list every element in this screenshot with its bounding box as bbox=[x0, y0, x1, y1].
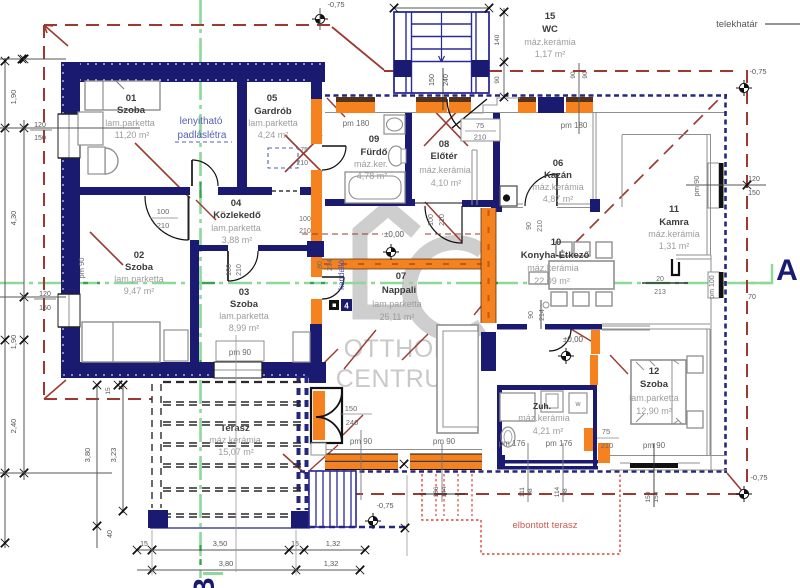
svg-text:90: 90 bbox=[494, 76, 501, 84]
svg-text:pm 90: pm 90 bbox=[77, 258, 86, 279]
svg-text:-0,75: -0,75 bbox=[750, 473, 767, 482]
svg-text:15: 15 bbox=[140, 541, 148, 548]
svg-text:4,78 m²: 4,78 m² bbox=[357, 171, 388, 181]
svg-text:75: 75 bbox=[300, 147, 308, 154]
svg-text:70: 70 bbox=[748, 294, 756, 301]
svg-text:elbontott terasz: elbontott terasz bbox=[513, 520, 578, 531]
svg-text:214: 214 bbox=[539, 309, 546, 321]
svg-text:210: 210 bbox=[236, 264, 243, 276]
svg-text:telekhatár: telekhatár bbox=[716, 19, 758, 30]
svg-text:Kazán: Kazán bbox=[544, 170, 572, 181]
svg-text:Előtér: Előtér bbox=[431, 151, 458, 162]
svg-text:WC: WC bbox=[542, 24, 558, 35]
svg-text:240: 240 bbox=[346, 418, 359, 427]
svg-text:pm 180: pm 180 bbox=[343, 119, 370, 128]
svg-text:máz.kerámia: máz.kerámia bbox=[209, 435, 261, 445]
svg-text:05: 05 bbox=[267, 93, 278, 104]
svg-text:3,23: 3,23 bbox=[109, 448, 118, 463]
svg-text:01: 01 bbox=[126, 93, 137, 104]
svg-text:4,24 m²: 4,24 m² bbox=[258, 130, 289, 140]
svg-text:98: 98 bbox=[562, 488, 569, 496]
svg-text:9,47 m²: 9,47 m² bbox=[124, 286, 155, 296]
svg-text:lam.parketta: lam.parketta bbox=[211, 223, 261, 233]
svg-text:22,09 m²: 22,09 m² bbox=[534, 276, 570, 286]
svg-text:1,31 m²: 1,31 m² bbox=[659, 241, 690, 251]
svg-text:Szoba: Szoba bbox=[230, 299, 259, 310]
svg-text:120: 120 bbox=[748, 176, 760, 183]
svg-text:1,90: 1,90 bbox=[9, 90, 18, 105]
svg-text:Közlekedő: Közlekedő bbox=[213, 210, 261, 221]
svg-text:12: 12 bbox=[649, 366, 660, 377]
svg-text:100: 100 bbox=[428, 214, 435, 226]
svg-text:100: 100 bbox=[157, 207, 170, 216]
svg-text:100: 100 bbox=[299, 216, 311, 223]
svg-text:lenyitható: lenyitható bbox=[180, 116, 223, 127]
svg-text:114: 114 bbox=[554, 486, 561, 497]
svg-text:-0,75: -0,75 bbox=[327, 0, 344, 9]
svg-text:12,90 m²: 12,90 m² bbox=[636, 406, 672, 416]
svg-text:210: 210 bbox=[537, 220, 544, 232]
svg-text:máz.ker.: máz.ker. bbox=[354, 159, 388, 169]
svg-text:padláslétra: padláslétra bbox=[178, 130, 227, 141]
svg-text:90: 90 bbox=[526, 222, 533, 230]
svg-text:25,11 m²: 25,11 m² bbox=[380, 312, 415, 322]
svg-text:1,17 m²: 1,17 m² bbox=[535, 49, 566, 59]
svg-text:09: 09 bbox=[369, 134, 380, 145]
svg-text:pm 90: pm 90 bbox=[229, 348, 252, 357]
svg-text:11: 11 bbox=[669, 204, 680, 215]
svg-text:98: 98 bbox=[527, 488, 534, 496]
svg-text:75: 75 bbox=[476, 121, 484, 130]
svg-text:Szoba: Szoba bbox=[640, 379, 669, 390]
svg-text:3,80: 3,80 bbox=[219, 559, 234, 568]
svg-text:210: 210 bbox=[296, 160, 308, 167]
svg-text:máz.kerámia: máz.kerámia bbox=[518, 413, 570, 423]
svg-text:pm 90: pm 90 bbox=[433, 437, 456, 446]
svg-text:186: 186 bbox=[433, 486, 440, 497]
svg-text:kandalló: kandalló bbox=[337, 260, 346, 290]
svg-text:03: 03 bbox=[239, 287, 250, 298]
svg-text:120: 120 bbox=[39, 291, 51, 298]
svg-text:Kamra: Kamra bbox=[659, 217, 689, 228]
svg-text:w: w bbox=[574, 401, 581, 408]
svg-text:1,32: 1,32 bbox=[324, 559, 339, 568]
svg-text:140: 140 bbox=[494, 34, 501, 45]
svg-text:15: 15 bbox=[545, 11, 556, 22]
svg-text:B: B bbox=[188, 577, 221, 588]
svg-text:210: 210 bbox=[439, 214, 446, 226]
svg-text:10: 10 bbox=[551, 237, 562, 248]
svg-text:-0,75: -0,75 bbox=[749, 67, 766, 76]
svg-text:240: 240 bbox=[443, 74, 450, 86]
svg-text:150: 150 bbox=[645, 491, 652, 502]
svg-text:11,20 m²: 11,20 m² bbox=[115, 130, 150, 140]
svg-text:150: 150 bbox=[34, 135, 46, 142]
svg-text:lam.parketta: lam.parketta bbox=[219, 311, 269, 321]
svg-text:lam.parketta: lam.parketta bbox=[372, 299, 422, 309]
svg-text:máz.kerámia: máz.kerámia bbox=[524, 37, 576, 47]
svg-text:150: 150 bbox=[748, 190, 760, 197]
svg-text:-0,75: -0,75 bbox=[376, 501, 393, 510]
svg-text:Szoba: Szoba bbox=[117, 105, 146, 116]
svg-text:lam.parketta: lam.parketta bbox=[629, 393, 679, 403]
svg-text:4,10 m²: 4,10 m² bbox=[431, 178, 462, 188]
svg-text:90: 90 bbox=[582, 71, 589, 79]
svg-text:lam.parketta: lam.parketta bbox=[248, 118, 298, 128]
svg-text:3,50: 3,50 bbox=[213, 539, 228, 548]
svg-text:pm 176: pm 176 bbox=[499, 439, 526, 448]
svg-text:±0,00: ±0,00 bbox=[384, 230, 405, 239]
svg-text:100: 100 bbox=[226, 264, 233, 276]
svg-text:02: 02 bbox=[134, 250, 145, 261]
svg-text:15: 15 bbox=[291, 541, 299, 548]
svg-text:Szoba: Szoba bbox=[125, 262, 154, 273]
svg-text:pm 176: pm 176 bbox=[546, 439, 573, 448]
svg-text:Nappali: Nappali bbox=[382, 285, 416, 296]
svg-text:90: 90 bbox=[528, 311, 535, 319]
svg-text:06: 06 bbox=[553, 158, 564, 169]
svg-text:15: 15 bbox=[105, 387, 112, 395]
svg-text:3,88 m²: 3,88 m² bbox=[222, 235, 253, 245]
svg-text:08: 08 bbox=[439, 139, 450, 150]
svg-text:lam.parketta: lam.parketta bbox=[105, 118, 155, 128]
svg-text:4,87 m²: 4,87 m² bbox=[543, 194, 574, 204]
svg-text:111: 111 bbox=[519, 487, 526, 497]
svg-text:Zuh.: Zuh. bbox=[533, 401, 551, 411]
svg-text:pm 100: pm 100 bbox=[709, 275, 716, 298]
svg-text:20: 20 bbox=[656, 276, 664, 283]
svg-text:Konyha-Étkező: Konyha-Étkező bbox=[521, 250, 590, 261]
svg-text:Fürdő: Fürdő bbox=[361, 147, 388, 158]
svg-text:pm 90: pm 90 bbox=[692, 176, 701, 197]
svg-text:150: 150 bbox=[429, 74, 436, 86]
svg-text:pm 180: pm 180 bbox=[561, 121, 588, 130]
svg-text:214: 214 bbox=[327, 259, 334, 271]
svg-text:2,40: 2,40 bbox=[9, 419, 18, 434]
svg-text:4,30: 4,30 bbox=[9, 211, 18, 226]
svg-text:4,21 m²: 4,21 m² bbox=[533, 426, 564, 436]
svg-text:Gardrób: Gardrób bbox=[254, 106, 292, 117]
svg-text:3,80: 3,80 bbox=[83, 448, 92, 463]
svg-text:120: 120 bbox=[34, 122, 46, 129]
svg-text:máz.kerámia: máz.kerámia bbox=[648, 229, 700, 239]
svg-text:75: 75 bbox=[602, 427, 610, 436]
svg-text:07: 07 bbox=[396, 271, 407, 282]
svg-text:lam.parketta: lam.parketta bbox=[114, 274, 164, 284]
svg-text:90: 90 bbox=[570, 71, 577, 79]
svg-text:150: 150 bbox=[653, 491, 660, 502]
svg-text:máz.kerámia: máz.kerámia bbox=[532, 182, 584, 192]
svg-text:213: 213 bbox=[654, 289, 666, 296]
svg-text:210: 210 bbox=[601, 441, 614, 450]
svg-text:144: 144 bbox=[441, 486, 448, 497]
svg-text:04: 04 bbox=[231, 198, 242, 209]
svg-text:80: 80 bbox=[317, 261, 324, 269]
svg-text:1,32: 1,32 bbox=[326, 539, 341, 548]
svg-text:1,90: 1,90 bbox=[9, 335, 18, 350]
svg-text:150: 150 bbox=[39, 305, 51, 312]
svg-text:máz.kerámia: máz.kerámia bbox=[527, 263, 579, 273]
svg-text:210: 210 bbox=[157, 221, 170, 230]
svg-text:40: 40 bbox=[107, 530, 114, 538]
svg-text:máz.kerámia: máz.kerámia bbox=[419, 165, 471, 175]
svg-text:210: 210 bbox=[474, 133, 487, 142]
svg-text:150: 150 bbox=[345, 404, 358, 413]
svg-text:4: 4 bbox=[344, 302, 349, 311]
svg-text:±0,00: ±0,00 bbox=[563, 335, 584, 344]
svg-text:Terasz: Terasz bbox=[220, 423, 250, 434]
svg-text:8,99 m²: 8,99 m² bbox=[229, 323, 260, 333]
svg-text:A: A bbox=[776, 254, 798, 287]
